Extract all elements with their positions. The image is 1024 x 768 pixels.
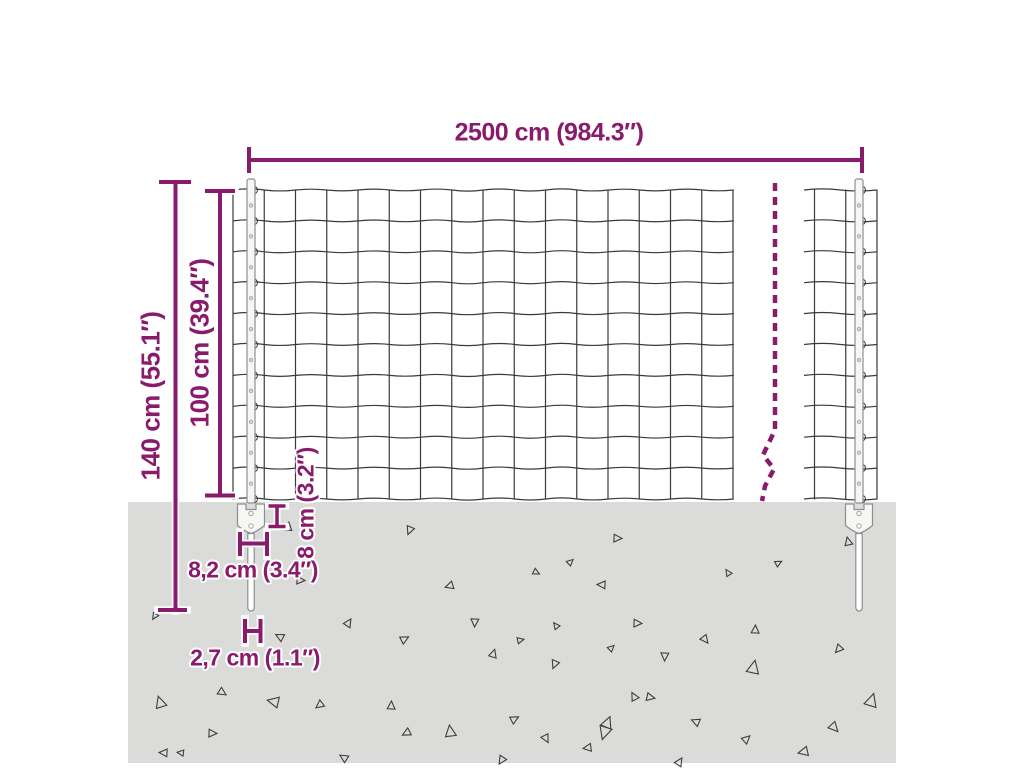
label-total-height: 140 cm (55.1″): [136, 312, 167, 481]
post-hole: [857, 235, 860, 238]
ground-spike: [856, 534, 862, 612]
post-hole: [249, 389, 252, 392]
label-total-width: 2500 cm (984.3″): [455, 119, 644, 148]
label-fence-height: 100 cm (39.4″): [185, 259, 216, 428]
fence-dimension-diagram: 2500 cm (984.3″) 140 cm (55.1″) 100 cm (…: [0, 0, 1024, 768]
post-hole: [857, 358, 860, 361]
post-hole: [249, 420, 252, 423]
plate-hole: [857, 524, 861, 528]
plate-hole: [249, 511, 253, 515]
post-hole: [857, 482, 860, 485]
post-hole: [249, 266, 252, 269]
post-hole: [249, 204, 252, 207]
post-hole: [249, 235, 252, 238]
post-hole: [249, 482, 252, 485]
post-hole: [857, 451, 860, 454]
post-hole: [857, 266, 860, 269]
post-hole: [249, 297, 252, 300]
post-hole: [857, 389, 860, 392]
label-anchor-width: 8,2 cm (3.4″): [188, 557, 318, 584]
post-hole: [249, 327, 252, 330]
post-hole: [249, 358, 252, 361]
post-hole: [249, 451, 252, 454]
mesh-panel-end: [804, 189, 877, 500]
post-hole: [857, 327, 860, 330]
plate-hole: [857, 511, 861, 515]
post-hole: [857, 204, 860, 207]
plate-hole: [249, 524, 253, 528]
label-anchor-depth: 8 cm (3.2″): [293, 447, 320, 559]
break-indicator-dashed-line: [762, 183, 775, 501]
label-spike-width: 2,7 cm (1.1″): [190, 645, 320, 672]
post-hole: [857, 420, 860, 423]
post-hole: [857, 297, 860, 300]
